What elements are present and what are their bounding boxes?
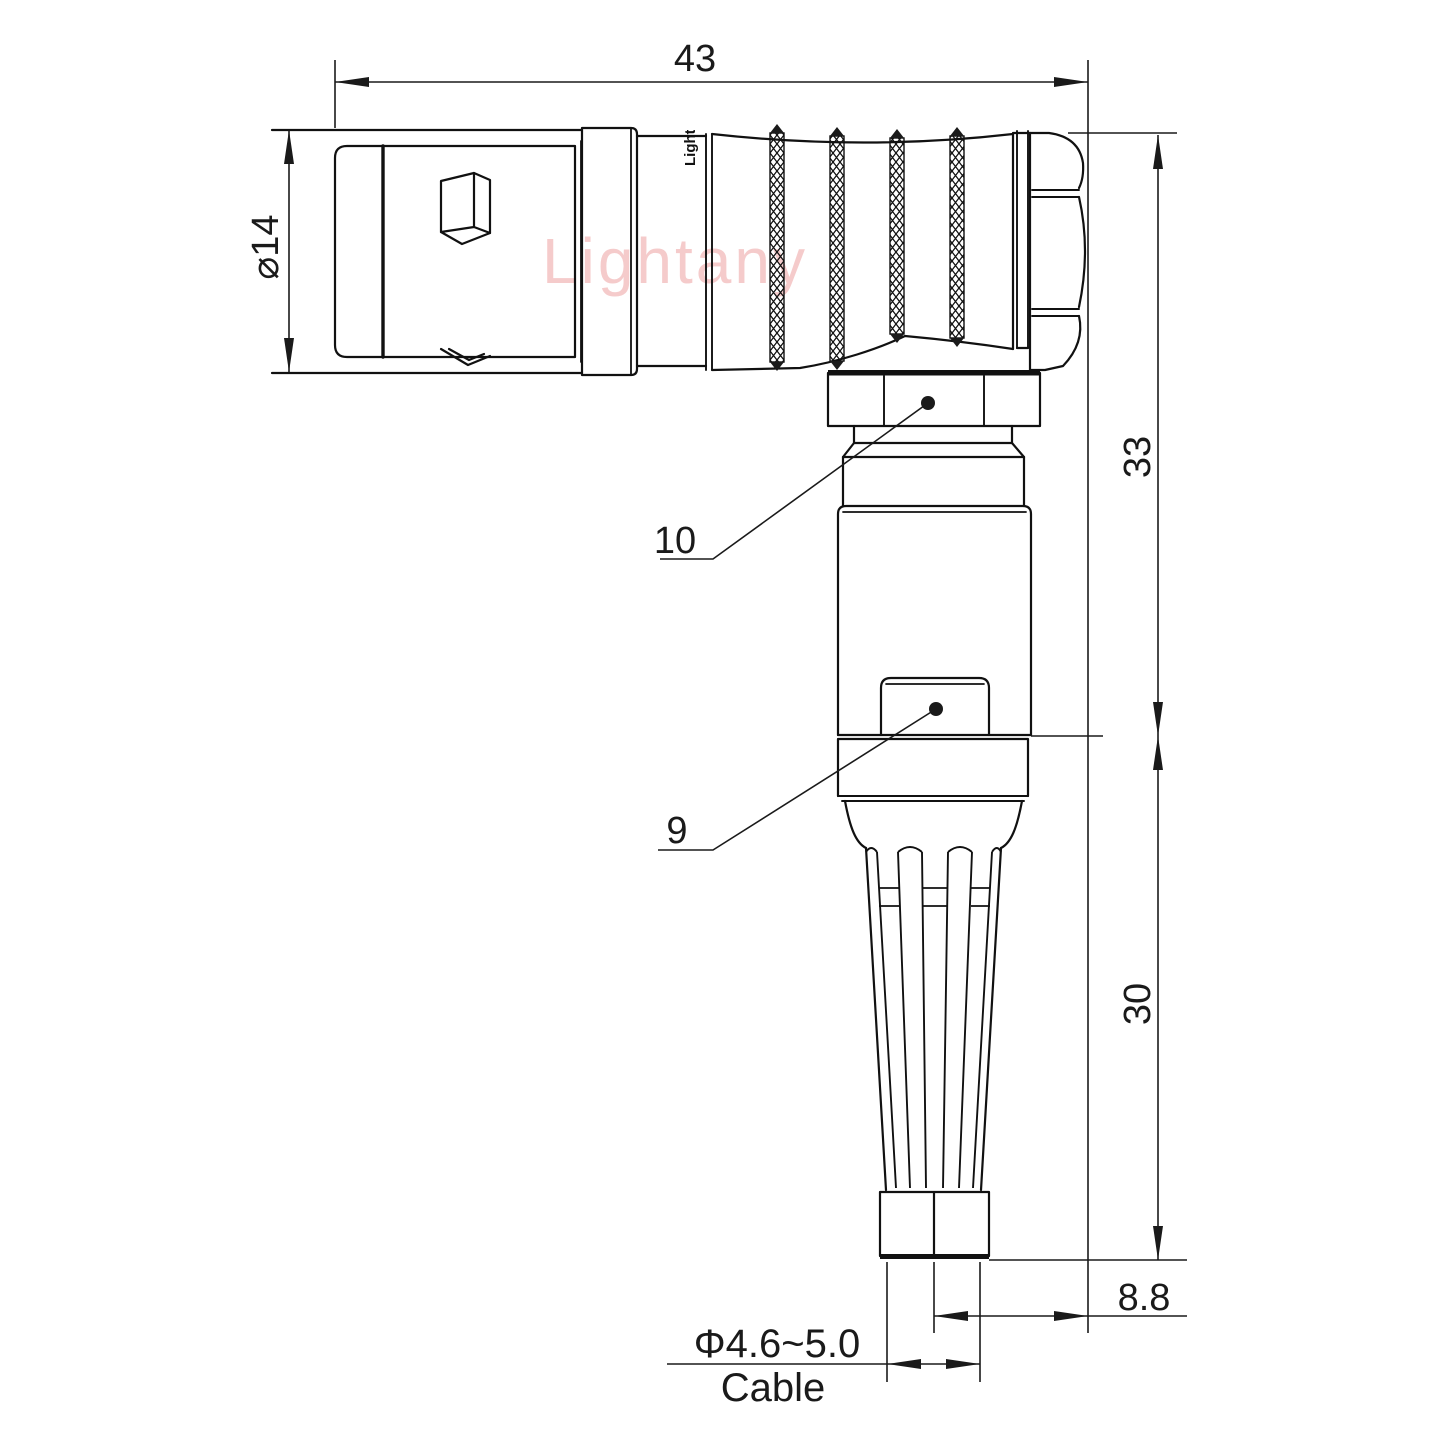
cable-label-text: Cable [721,1366,826,1410]
arrowhead [1153,736,1163,770]
dimension-cable-diameter: Φ4.6~5.0 Cable [667,1262,980,1410]
cable-ferrule [880,1192,989,1259]
dim-14-text: ⌀14 [245,214,287,279]
strain-relief-taper [845,801,1022,848]
callout-10-text: 10 [654,520,696,562]
barrel-bottom-elbow [712,336,1013,370]
barrel-top-curve [712,134,1013,143]
dim-43-text: 43 [674,38,716,80]
dim-33-text: 33 [1117,436,1159,478]
vertical-leg [828,370,1040,1259]
arrowhead [887,1359,921,1369]
dim-8-8-text: 8.8 [1118,1277,1171,1319]
end-cap-crown-nut [1030,133,1085,370]
hex-top-thick-line [828,370,1040,376]
leader-line [658,709,936,850]
back-ring [1013,131,1030,348]
arrowhead [1153,702,1163,736]
arrowhead [284,130,294,164]
arrowhead [335,77,369,87]
arrowhead [1153,1226,1163,1260]
main-housing [838,506,1031,735]
arrowhead [946,1359,980,1369]
callout-9: 9 [658,702,943,852]
dim-30-text: 30 [1117,983,1159,1025]
knurl-band [950,127,964,347]
leader-dot [921,396,935,410]
knurl-band [890,129,904,343]
arrowhead [1054,77,1088,87]
dimension-front-diameter: ⌀14 [245,130,294,372]
knurl-band [770,124,784,371]
arrowhead [934,1311,968,1321]
strain-relief-ribs [866,847,1001,1190]
arrowhead [284,338,294,372]
ferrule-bottom-thick-line [880,1254,989,1259]
leader-dot [929,702,943,716]
lower-ring [838,739,1028,801]
hex-nut [828,370,1040,426]
connector-dimension-drawing: Lightany [0,0,1440,1440]
callout-9-text: 9 [666,810,687,852]
arrowhead [1153,135,1163,169]
brand-engraving: Lightany [682,103,699,166]
dimension-axis-offset: 8.8 [934,1277,1187,1321]
technical-drawing-page: Lightany [0,0,1440,1440]
callout-10: 10 [654,396,935,562]
key-tab [441,173,490,244]
cable-diameter-text: Φ4.6~5.0 [694,1322,860,1366]
arrowhead [1054,1311,1088,1321]
upper-block [843,457,1024,506]
knurl-band [830,127,844,370]
